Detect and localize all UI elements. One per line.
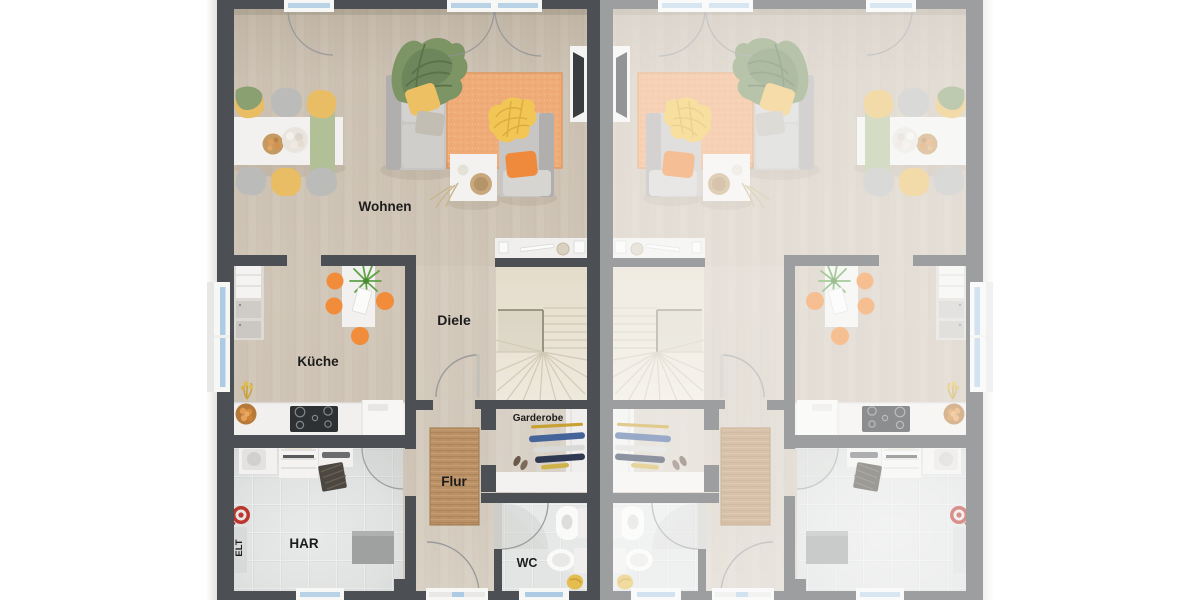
svg-text:HAR: HAR (289, 536, 318, 551)
svg-text:ELT: ELT (234, 539, 245, 556)
svg-text:Flur: Flur (441, 474, 467, 489)
svg-text:Garderobe: Garderobe (513, 413, 564, 424)
svg-text:Küche: Küche (297, 354, 339, 369)
svg-text:Wohnen: Wohnen (359, 199, 412, 214)
svg-text:WC: WC (517, 556, 538, 570)
svg-text:Diele: Diele (437, 312, 471, 328)
